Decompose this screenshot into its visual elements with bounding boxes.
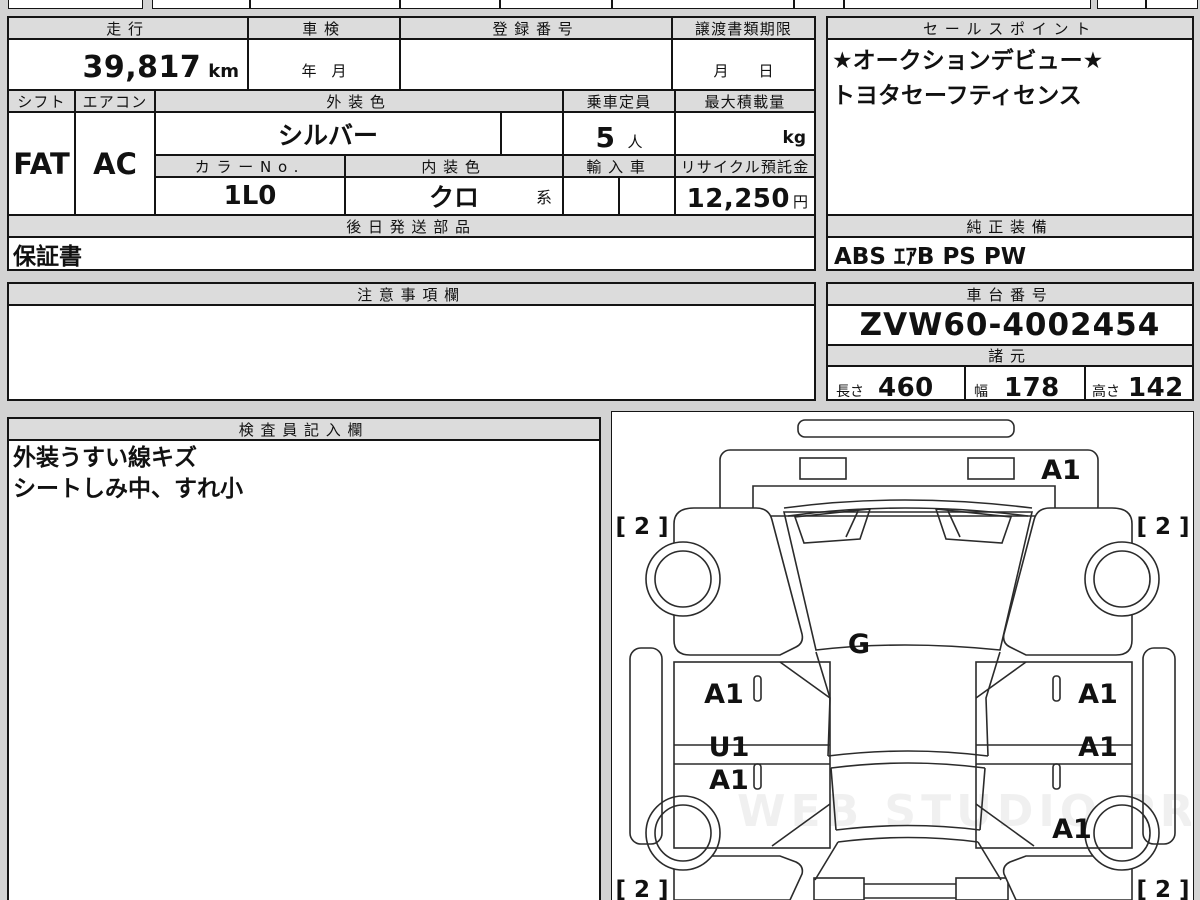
color-no-header: カラーNo. [155,155,345,177]
cutoff-cell [794,0,844,9]
registration-header: 登録番号 [400,17,672,39]
cutoff-cell [500,0,612,9]
roof-rear-line-2 [831,763,985,768]
registration-value-cell [400,39,672,90]
cutoff-cell [1097,0,1146,9]
mark-windshield: G [848,629,870,660]
spec-length-value: 460 [878,373,934,403]
tail-lamp-left [814,878,864,900]
inspector-header: 検査員記入欄 [8,418,600,440]
deadline-value-cell: 月 日 [672,39,815,90]
tire-mark-rear-left: [ 2 ] [615,877,668,900]
mark-hood: A1 [1041,455,1081,486]
later-parts-value: 保証書 [8,237,815,270]
inspector-line-2: シートしみ中、すれ小 [13,474,595,505]
mark-door-rear-left-upper: U1 [709,732,750,763]
windshield [784,512,1032,650]
tail-lamp-right [956,878,1008,900]
chassis-number: ZVW60-4002454 [827,305,1193,345]
mark-door-rear-right: A1 [1078,732,1118,763]
vent-right-line [948,511,960,537]
spec-length-cell: 長さ 460 [827,366,965,400]
tire-mark-front-right: [ 2 ] [1136,514,1189,540]
shift-header: シフト [8,90,75,112]
front-bumper [798,420,1014,437]
vent-left-line [846,511,858,537]
spec-height-label: 高さ [1092,381,1120,401]
interior-color-value: クロ [429,178,479,214]
inspector-body: 外装うすい線キズ シートしみ中、すれ小 [8,440,600,900]
auction-sheet: 走行 車検 登録番号 譲渡書類期限 39,817 km 年 月 月 日 シフト … [0,0,1200,900]
specs-header: 諸元 [827,345,1193,366]
exterior-color-extra-cell [501,112,563,155]
capacity-unit: 人 [627,131,642,152]
mark-door-rear-left-lower: A1 [709,765,749,796]
spec-height-cell: 高さ 142 [1085,366,1193,400]
import-value-cell-1 [563,177,619,215]
roof-rear-line-1 [828,751,988,756]
cutoff-cell [8,0,143,9]
capacity-value: 5 [596,121,616,154]
cutoff-cell [844,0,1091,9]
exterior-color-header: 外装色 [155,90,563,112]
recycle-value-cell: 12,250 円 [675,177,815,215]
equipment-value: ABS ｴｱB PS PW [827,237,1193,270]
door-handle-front-left [754,676,761,701]
recycle-value: 12,250 [687,184,790,214]
cutoff-cell [152,0,250,9]
sales-point-table: セールスポイント ★オークションデビュー★ トヨタセーフティセンス 純正装備 A… [827,17,1193,270]
aircon-header: エアコン [75,90,155,112]
spec-length-label: 長さ [836,381,864,401]
vehicle-info-table: 走行 車検 登録番号 譲渡書類期限 39,817 km 年 月 月 日 シフト … [8,17,815,270]
import-header: 輸入車 [563,155,675,177]
wheel-rear-left [646,796,720,870]
exterior-color-value: シルバー [155,112,501,155]
inspection-header: 車検 [248,17,400,39]
rear-bumper-bar [864,884,956,898]
cutoff-cell [612,0,794,9]
chassis-specs-section: 車台番号 ZVW60-4002454 諸元 長さ 460 幅 178 高さ 14… [827,283,1193,400]
spec-width-cell: 幅 178 [965,366,1085,400]
roof-side-left [816,652,830,756]
sales-point-header: セールスポイント [827,17,1193,39]
wheel-front-left [646,542,720,616]
later-parts-header: 後日発送部品 [8,215,815,237]
spec-width-label: 幅 [974,381,988,401]
mark-door-front-right: A1 [1078,679,1118,710]
mark-quarter-rear-right: A1 [1052,814,1092,845]
recycle-header: リサイクル預託金 [675,155,815,177]
deadline-header: 譲渡書類期限 [672,17,815,39]
roof-side-right [986,652,1000,756]
recycle-unit: 円 [793,191,808,212]
sales-point-body: ★オークションデビュー★ トヨタセーフティセンス [827,39,1193,215]
headlight-right [968,458,1014,479]
inspector-section: 検査員記入欄 外装うすい線キズ シートしみ中、すれ小 [8,418,600,900]
notes-header: 注意事項欄 [8,283,815,305]
cutoff-cell [250,0,400,9]
vent-right [936,509,1011,543]
wheel-rear-right [1085,796,1159,870]
inspector-line-1: 外装うすい線キズ [13,443,595,474]
car-diagram-svg: WEB STUDIO PRO [614,414,1191,900]
cowl-line-1 [784,500,1032,508]
chassis-header: 車台番号 [827,283,1193,305]
door-handle-front-right [1053,676,1060,701]
mark-door-front-left: A1 [704,679,744,710]
tire-mark-front-left: [ 2 ] [615,514,668,540]
capacity-header: 乗車定員 [563,90,675,112]
wheel-front-right [1085,542,1159,616]
mileage-value: 39,817 [82,50,201,85]
a-pillar-fold-left [780,662,830,698]
damage-diagram: WEB STUDIO PRO [612,412,1193,900]
hatch-line-2 [838,838,978,843]
mileage-unit: km [208,61,239,82]
mileage-header: 走行 [8,17,248,39]
max-load-header: 最大積載量 [675,90,815,112]
aircon-value: AC [75,112,155,215]
inspection-value-cell: 年 月 [248,39,400,90]
door-divider-left [674,745,830,764]
a-pillar-fold-right [976,662,1026,698]
interior-color-header: 内装色 [345,155,563,177]
color-no-value: 1L0 [155,177,345,215]
max-load-value-cell: kg [675,112,815,155]
import-value-cell-2 [619,177,675,215]
interior-color-value-cell: クロ 系 [345,177,563,215]
cutoff-cell [400,0,500,9]
cutoff-cell [1146,0,1198,9]
equipment-header: 純正装備 [827,215,1193,237]
shift-value: FAT [8,112,75,215]
notes-body [8,305,815,400]
mileage-value-cell: 39,817 km [8,39,248,90]
interior-color-suffix: 系 [536,184,552,208]
sales-point-line-2: トヨタセーフティセンス [832,79,1188,114]
spec-width-value: 178 [1004,373,1060,403]
capacity-value-cell: 5 人 [563,112,675,155]
notes-section: 注意事項欄 [8,283,815,400]
spec-height-value: 142 [1128,373,1184,403]
headlight-left [800,458,846,479]
sales-point-line-1: ★オークションデビュー★ [832,44,1188,79]
tire-mark-rear-right: [ 2 ] [1136,877,1189,900]
